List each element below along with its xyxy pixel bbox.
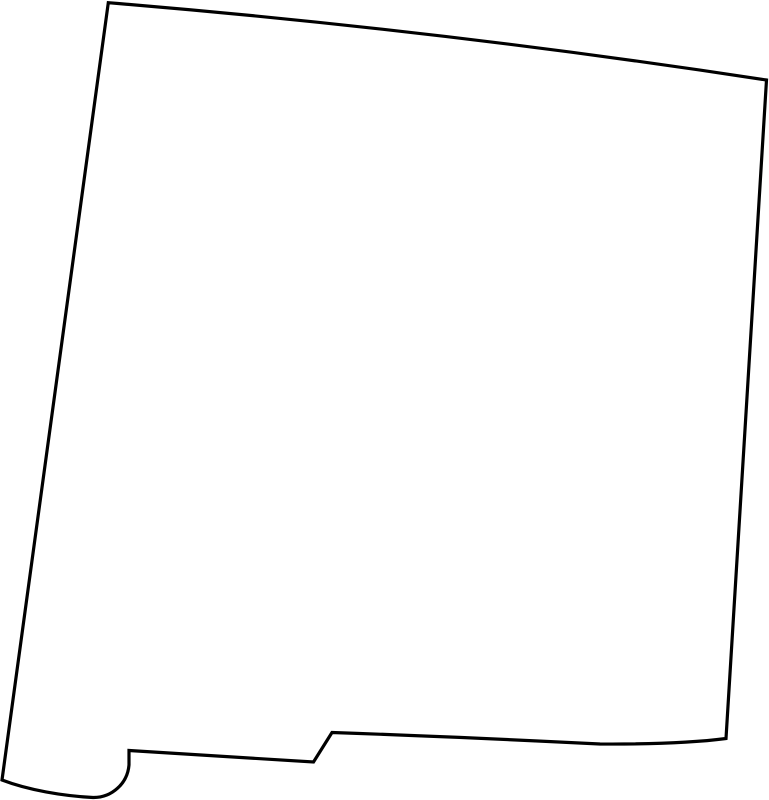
page [0, 0, 769, 800]
new-mexico-outline-map [0, 0, 769, 800]
state-border-outline [2, 3, 767, 798]
